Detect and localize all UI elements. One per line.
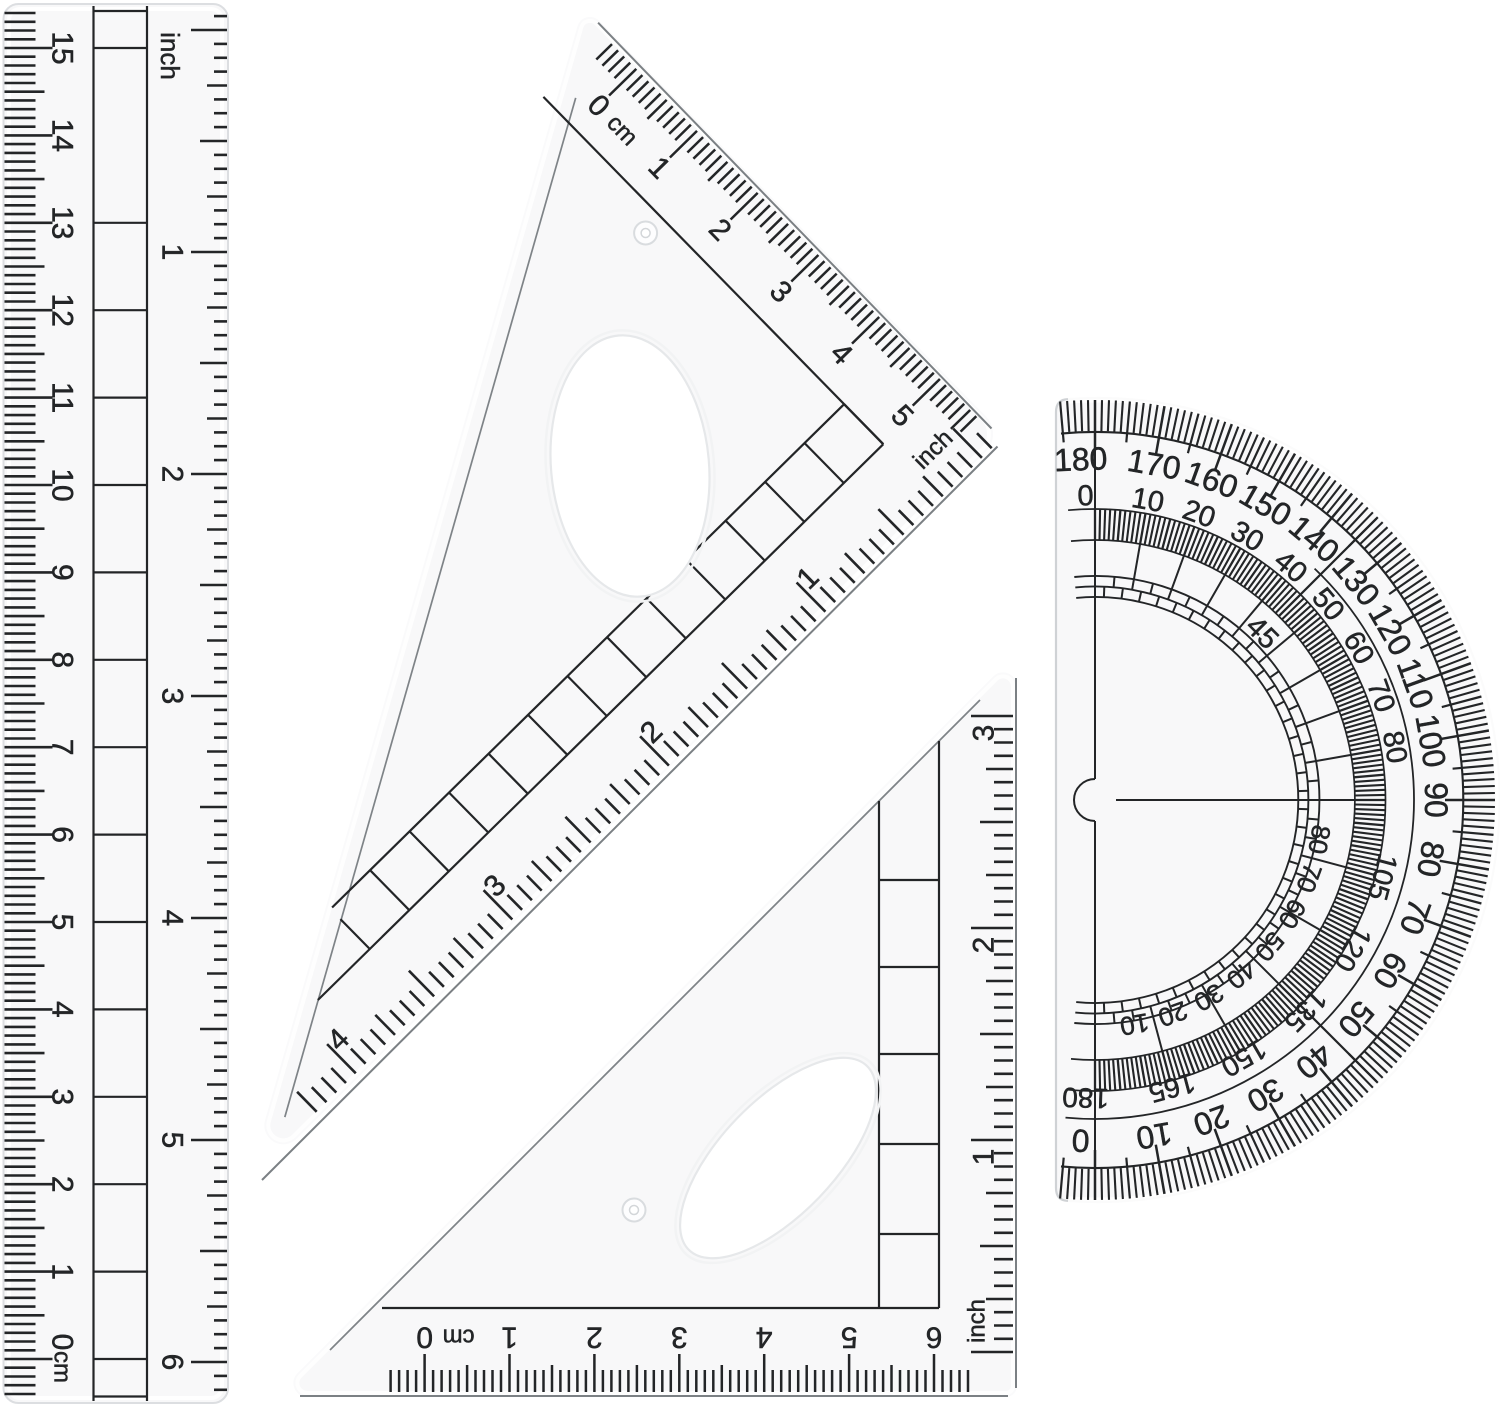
svg-text:1: 1 <box>968 1149 1001 1166</box>
svg-text:180: 180 <box>1053 440 1108 478</box>
svg-text:2: 2 <box>586 1321 603 1354</box>
svg-text:3: 3 <box>156 688 189 705</box>
svg-text:inch: inch <box>155 32 185 80</box>
svg-text:6: 6 <box>156 1354 189 1371</box>
svg-text:10: 10 <box>1129 482 1166 519</box>
svg-text:10: 10 <box>1118 1007 1152 1042</box>
svg-text:80: 80 <box>1410 839 1452 880</box>
svg-text:inch: inch <box>964 1299 991 1343</box>
svg-text:12: 12 <box>46 294 79 327</box>
svg-text:4: 4 <box>46 1001 79 1018</box>
svg-text:180: 180 <box>1062 1082 1110 1114</box>
svg-text:3: 3 <box>46 1088 79 1105</box>
svg-text:1: 1 <box>46 1263 79 1280</box>
svg-text:4: 4 <box>756 1321 773 1354</box>
svg-text:15: 15 <box>46 31 79 64</box>
svg-text:0: 0 <box>1077 480 1094 512</box>
svg-text:14: 14 <box>46 119 79 152</box>
svg-text:90: 90 <box>1418 782 1454 818</box>
svg-text:4: 4 <box>156 910 189 927</box>
svg-text:3: 3 <box>968 725 1001 742</box>
svg-text:8: 8 <box>46 651 79 668</box>
svg-text:1: 1 <box>501 1321 518 1354</box>
svg-text:9: 9 <box>46 564 79 581</box>
svg-text:3: 3 <box>671 1321 688 1354</box>
svg-text:5: 5 <box>841 1321 858 1354</box>
svg-text:5: 5 <box>156 1132 189 1149</box>
svg-text:6: 6 <box>46 826 79 843</box>
svg-text:0: 0 <box>416 1321 433 1354</box>
svg-text:7: 7 <box>46 739 79 756</box>
svg-text:10: 10 <box>1134 1115 1175 1157</box>
svg-text:cm: cm <box>49 1351 76 1383</box>
svg-text:2: 2 <box>968 937 1001 954</box>
svg-text:11: 11 <box>46 382 79 413</box>
svg-text:0: 0 <box>1071 1122 1090 1159</box>
svg-text:13: 13 <box>46 206 79 239</box>
svg-text:80: 80 <box>1302 823 1337 857</box>
svg-text:cm: cm <box>443 1324 475 1351</box>
svg-text:6: 6 <box>926 1321 943 1354</box>
svg-text:5: 5 <box>46 914 79 931</box>
svg-text:1: 1 <box>156 244 189 261</box>
svg-text:2: 2 <box>46 1176 79 1193</box>
svg-text:0: 0 <box>46 1334 79 1351</box>
svg-text:2: 2 <box>156 466 189 483</box>
svg-text:10: 10 <box>46 468 79 501</box>
svg-text:80: 80 <box>1376 729 1413 766</box>
